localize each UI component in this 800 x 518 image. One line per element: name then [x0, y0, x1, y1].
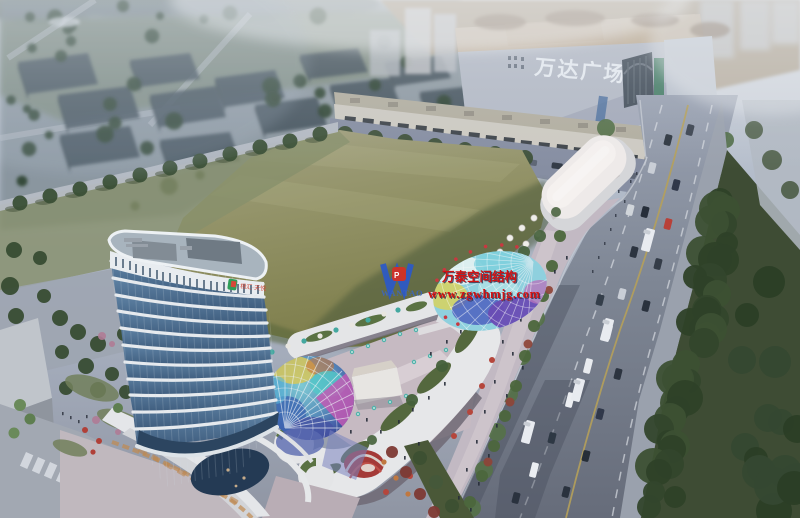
svg-text:P: P	[394, 271, 400, 280]
svg-text:万泰空间结构: 万泰空间结构	[441, 269, 517, 284]
svg-text:www.zgwhmjg.com: www.zgwhmjg.com	[428, 287, 540, 301]
svg-text:WANTAO: WANTAO	[381, 288, 423, 298]
